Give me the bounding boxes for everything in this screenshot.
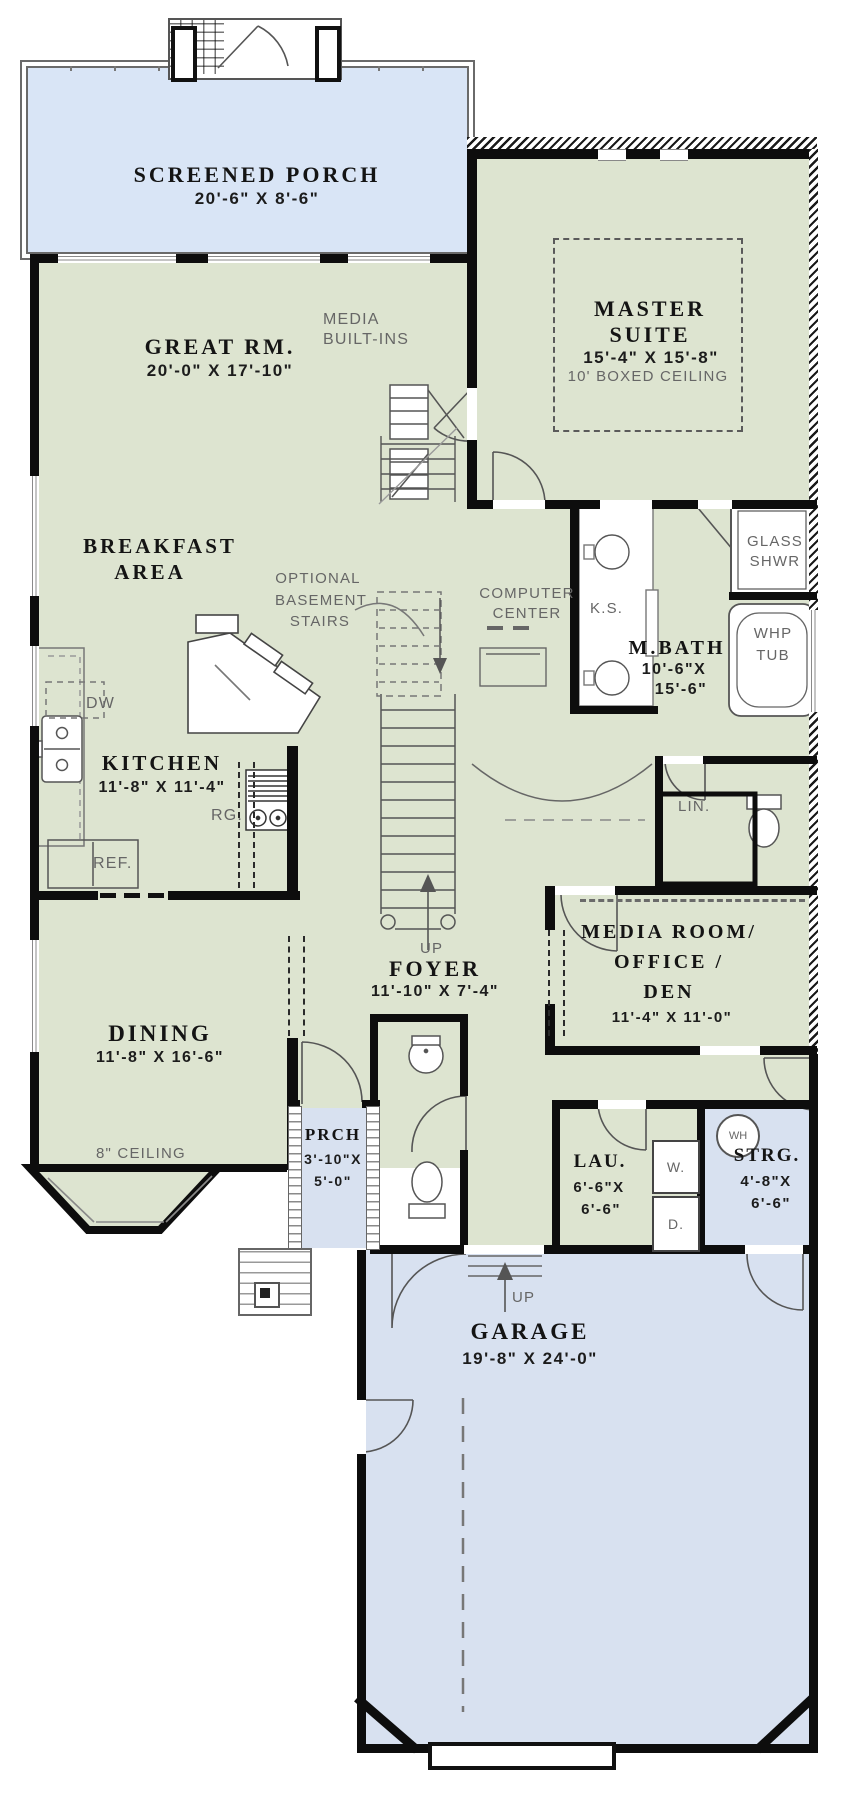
wall <box>570 504 579 714</box>
kitchen-label: KITCHEN <box>102 753 222 774</box>
window <box>30 940 39 1052</box>
master-suite-dims: 15'-4" X 15'-8" <box>583 349 719 366</box>
dishwasher-label: DW <box>86 696 115 712</box>
wall <box>552 1100 560 1254</box>
window <box>598 149 626 161</box>
door-opening <box>493 500 545 509</box>
door-master <box>493 452 545 504</box>
wall <box>729 592 817 600</box>
master-suite-ceiling: 10' BOXED CEILING <box>568 369 729 384</box>
stairs-basement-optional <box>355 592 447 696</box>
wall <box>460 1150 468 1254</box>
window <box>660 149 688 161</box>
toilet-master-wc <box>747 795 781 847</box>
media-room-dims: 11'-4" X 11'-0" <box>612 1010 733 1025</box>
garage-up-arrow <box>497 1262 513 1312</box>
kitchen-sink-island-label: K.S. <box>590 601 623 616</box>
wall <box>545 1046 817 1055</box>
washer-label: W. <box>667 1159 685 1175</box>
window <box>208 254 320 263</box>
great-room-dims: 20'-0" X 17'-10" <box>147 362 294 379</box>
whirlpool-label2: TUB <box>756 648 790 663</box>
screened-porch-label: SCREENED PORCH <box>134 164 381 186</box>
wall-dash <box>100 893 116 898</box>
door-chimney <box>218 26 288 68</box>
master-bath-label: M.BATH <box>628 638 725 658</box>
kitchen-dims: 11'-8" X 11'-4" <box>98 780 225 796</box>
porch-pier <box>366 1106 380 1250</box>
computer-dash <box>487 626 503 630</box>
kitchen-island <box>188 615 320 733</box>
wall <box>467 149 817 159</box>
garage-corner-right <box>757 1696 815 1750</box>
screened-porch-dims: 20'-6" X 8'-6" <box>195 190 320 207</box>
stairs-main <box>381 694 455 929</box>
dining-label: DINING <box>108 1022 212 1045</box>
storage-label: STRG. <box>734 1146 801 1165</box>
water-heater-label: WH <box>729 1130 747 1142</box>
garage-door-panel <box>428 1742 616 1770</box>
refrigerator-label: REF. <box>93 856 132 872</box>
door-opening <box>600 500 652 509</box>
media-builtins-label2: BUILT-INS <box>323 332 409 348</box>
media-room-label2: OFFICE / <box>614 952 724 972</box>
door-glass-shower <box>698 508 733 550</box>
door-opening <box>745 1245 803 1254</box>
window <box>58 254 176 263</box>
wall-dash <box>124 893 140 898</box>
master-bath-dims1: 10'-6"X <box>642 662 707 678</box>
up-garage-label: UP <box>512 1290 535 1305</box>
optional-stairs-label2: BASEMENT <box>275 593 367 608</box>
media-room-label1: MEDIA ROOM/ <box>581 922 757 942</box>
toilet-powder <box>409 1162 445 1218</box>
window <box>30 476 39 596</box>
up-stairs-label: UP <box>420 941 443 956</box>
garage-label: GARAGE <box>471 1320 590 1343</box>
wall-hatch <box>467 137 817 149</box>
linen-label: LIN. <box>678 799 710 814</box>
breakfast-label2: AREA <box>114 562 186 583</box>
door-opening <box>700 1046 760 1055</box>
door-opening <box>698 500 732 509</box>
wall <box>460 1014 468 1096</box>
optional-stairs-label1: OPTIONAL <box>275 571 360 586</box>
computer-center-label1: COMPUTER <box>479 586 574 601</box>
breakfast-label1: BREAKFAST <box>83 536 237 557</box>
dryer-box: D. <box>652 1196 700 1252</box>
door-opening <box>553 886 615 895</box>
stairs-up-arrow <box>420 874 436 950</box>
media-room-label3: DEN <box>643 982 694 1002</box>
door-front <box>302 1042 362 1104</box>
wall <box>168 891 300 900</box>
ceiling-8-label: 8" CEILING <box>96 1146 186 1161</box>
wall <box>467 149 477 506</box>
door-house-garage <box>392 1254 466 1328</box>
storage-dims1: 4'-8"X <box>740 1174 791 1189</box>
porch-label: PRCH <box>305 1126 361 1143</box>
door-opening <box>467 388 477 440</box>
laundry-dims1: 6'-6"X <box>573 1180 624 1195</box>
window <box>30 646 39 726</box>
computer-desk <box>480 648 546 686</box>
glass-shower-label1: GLASS <box>747 534 803 549</box>
door-storage-garage <box>747 1254 803 1310</box>
floor-plan: W. D. WH SCREENED PORCH 20'-6" X 8'-6" G… <box>0 0 850 1817</box>
whirlpool-label1: WHP <box>754 626 793 641</box>
garage-dims: 19'-8" X 24'-0" <box>462 1350 598 1367</box>
wall-hatch <box>809 149 818 1054</box>
window <box>809 610 818 712</box>
garage-corner-left <box>357 1698 417 1750</box>
column-line <box>238 762 255 888</box>
door-garage-side <box>361 1400 413 1452</box>
optional-stairs-label3: STAIRS <box>290 614 350 629</box>
hall-niche <box>472 764 652 820</box>
computer-center-label2: CENTER <box>493 606 562 621</box>
media-builtins-label1: MEDIA <box>323 312 380 328</box>
door-opening <box>663 756 703 764</box>
wall <box>30 891 98 900</box>
wall <box>357 1250 366 1752</box>
wall <box>370 1014 468 1022</box>
computer-dash <box>513 626 529 630</box>
front-stoop-core <box>260 1288 270 1298</box>
porch-dims1: 3'-10"X <box>304 1152 362 1166</box>
wall <box>552 1100 817 1109</box>
wall <box>655 756 663 890</box>
dining-bay-window <box>30 1168 218 1230</box>
porch-dims2: 5'-0" <box>314 1174 352 1188</box>
wall <box>545 886 555 930</box>
wall <box>370 1014 378 1108</box>
master-suite-label1: MASTER <box>594 298 706 320</box>
kitchen-sink <box>34 716 82 782</box>
powder-sink <box>409 1036 443 1073</box>
column-line <box>548 930 565 1036</box>
column-line <box>288 936 305 1036</box>
wall <box>570 706 658 714</box>
opening-steps <box>464 1245 544 1254</box>
dryer-label: D. <box>668 1216 684 1232</box>
laundry-label: LAU. <box>574 1152 627 1171</box>
master-bath-dims2: 15'-6" <box>655 682 707 698</box>
door-opening <box>357 1400 366 1454</box>
laundry-dims2: 6'-6" <box>581 1202 621 1217</box>
porch-pier <box>288 1106 302 1250</box>
door-powder <box>412 1096 466 1152</box>
foyer-label: FOYER <box>389 958 481 980</box>
window <box>348 254 430 263</box>
cased-opening-dash <box>580 899 805 902</box>
washer-box: W. <box>652 1140 700 1194</box>
dining-dims: 11'-8" X 16'-6" <box>96 1050 224 1066</box>
wall <box>287 746 298 893</box>
door-laundry <box>598 1104 646 1150</box>
door-opening <box>598 1100 646 1109</box>
wall-dash <box>148 893 164 898</box>
glass-shower-label2: SHWR <box>750 554 801 569</box>
foyer-dims: 11'-10" X 7'-4" <box>371 984 499 1000</box>
master-suite-label2: SUITE <box>609 324 690 346</box>
range-label: RG. <box>211 808 243 824</box>
glass-shower-stall <box>731 504 813 596</box>
great-room-label: GREAT RM. <box>145 336 296 358</box>
storage-dims2: 6'-6" <box>751 1196 791 1211</box>
